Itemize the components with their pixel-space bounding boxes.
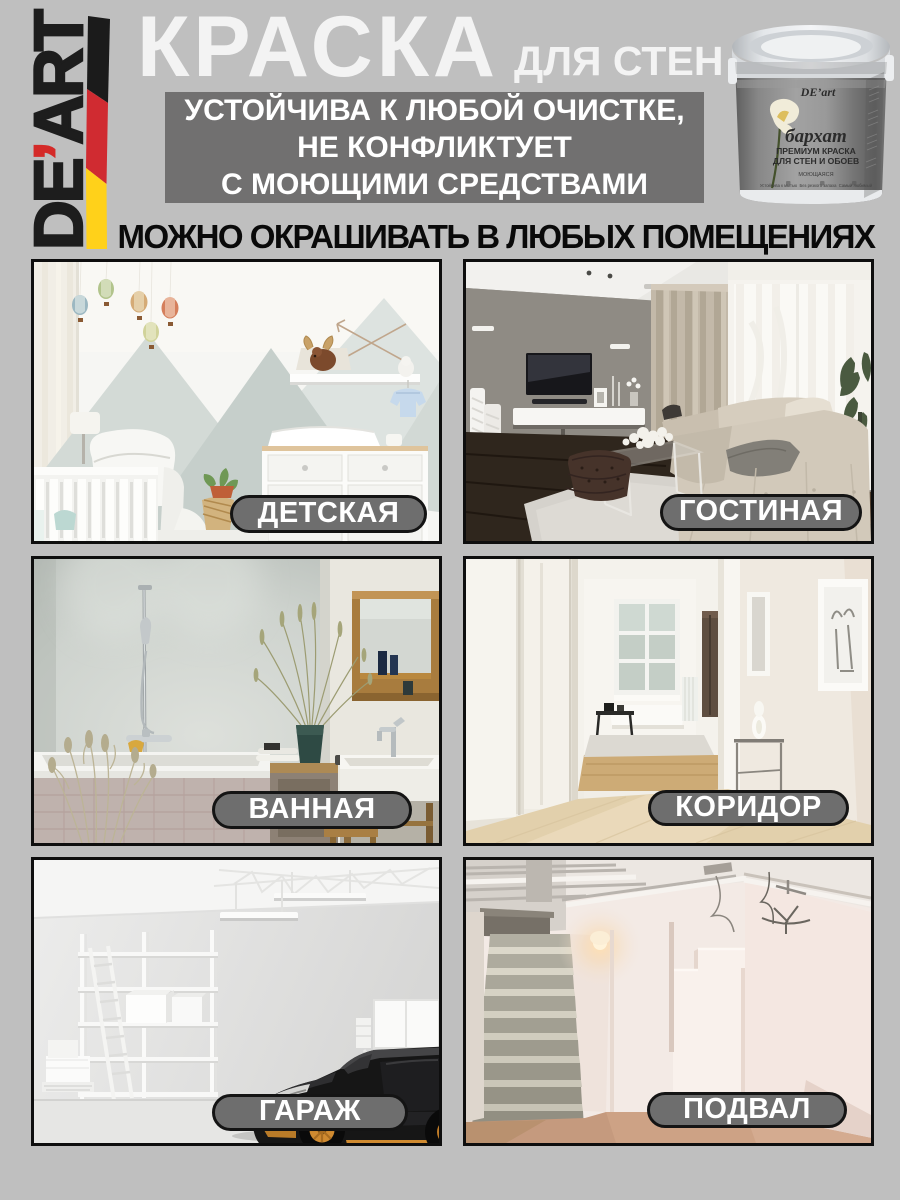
- svg-text:МОЮЩАЯСЯ: МОЮЩАЯСЯ: [798, 172, 833, 178]
- svg-text:ПРЕМИУМ КРАСКА: ПРЕМИУМ КРАСКА: [776, 146, 856, 156]
- svg-text:ДЛЯ СТЕН И ОБОЕВ: ДЛЯ СТЕН И ОБОЕВ: [773, 156, 859, 166]
- svg-text:бархат: бархат: [785, 126, 847, 147]
- svg-text:DE’art: DE’art: [800, 85, 836, 99]
